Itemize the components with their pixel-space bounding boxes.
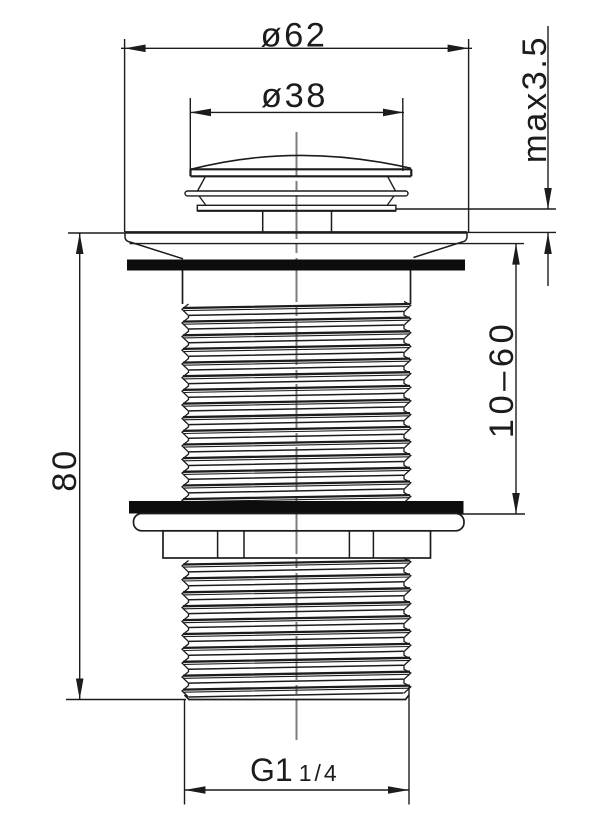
- svg-text:10–60: 10–60: [483, 320, 521, 438]
- svg-text:ø62: ø62: [261, 17, 328, 55]
- svg-text:ø38: ø38: [261, 77, 328, 115]
- svg-text:80: 80: [46, 448, 84, 491]
- svg-text:max3.5: max3.5: [516, 35, 554, 163]
